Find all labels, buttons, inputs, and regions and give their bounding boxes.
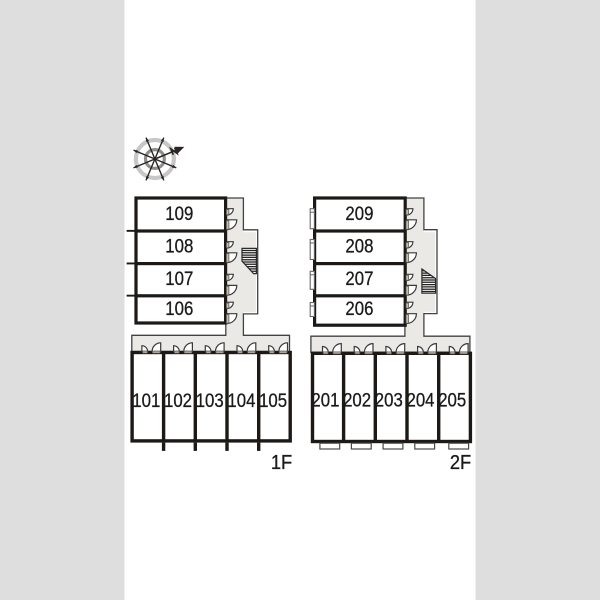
svg-text:203: 203 [375, 389, 403, 410]
svg-text:101: 101 [132, 390, 160, 411]
svg-text:102: 102 [164, 390, 192, 411]
svg-text:104: 104 [227, 390, 255, 411]
svg-text:2F: 2F [450, 452, 471, 474]
svg-text:204: 204 [406, 389, 434, 410]
svg-text:108: 108 [165, 236, 193, 257]
svg-text:206: 206 [345, 298, 373, 319]
svg-text:107: 107 [165, 268, 193, 289]
svg-text:201: 201 [311, 389, 339, 410]
svg-text:105: 105 [259, 390, 287, 411]
svg-text:207: 207 [345, 268, 373, 289]
svg-text:1F: 1F [271, 452, 292, 474]
svg-text:205: 205 [438, 389, 466, 410]
svg-text:209: 209 [345, 203, 373, 224]
svg-text:109: 109 [165, 203, 193, 224]
svg-text:106: 106 [165, 298, 193, 319]
svg-text:202: 202 [343, 389, 371, 410]
svg-text:208: 208 [345, 236, 373, 257]
svg-text:103: 103 [196, 390, 224, 411]
